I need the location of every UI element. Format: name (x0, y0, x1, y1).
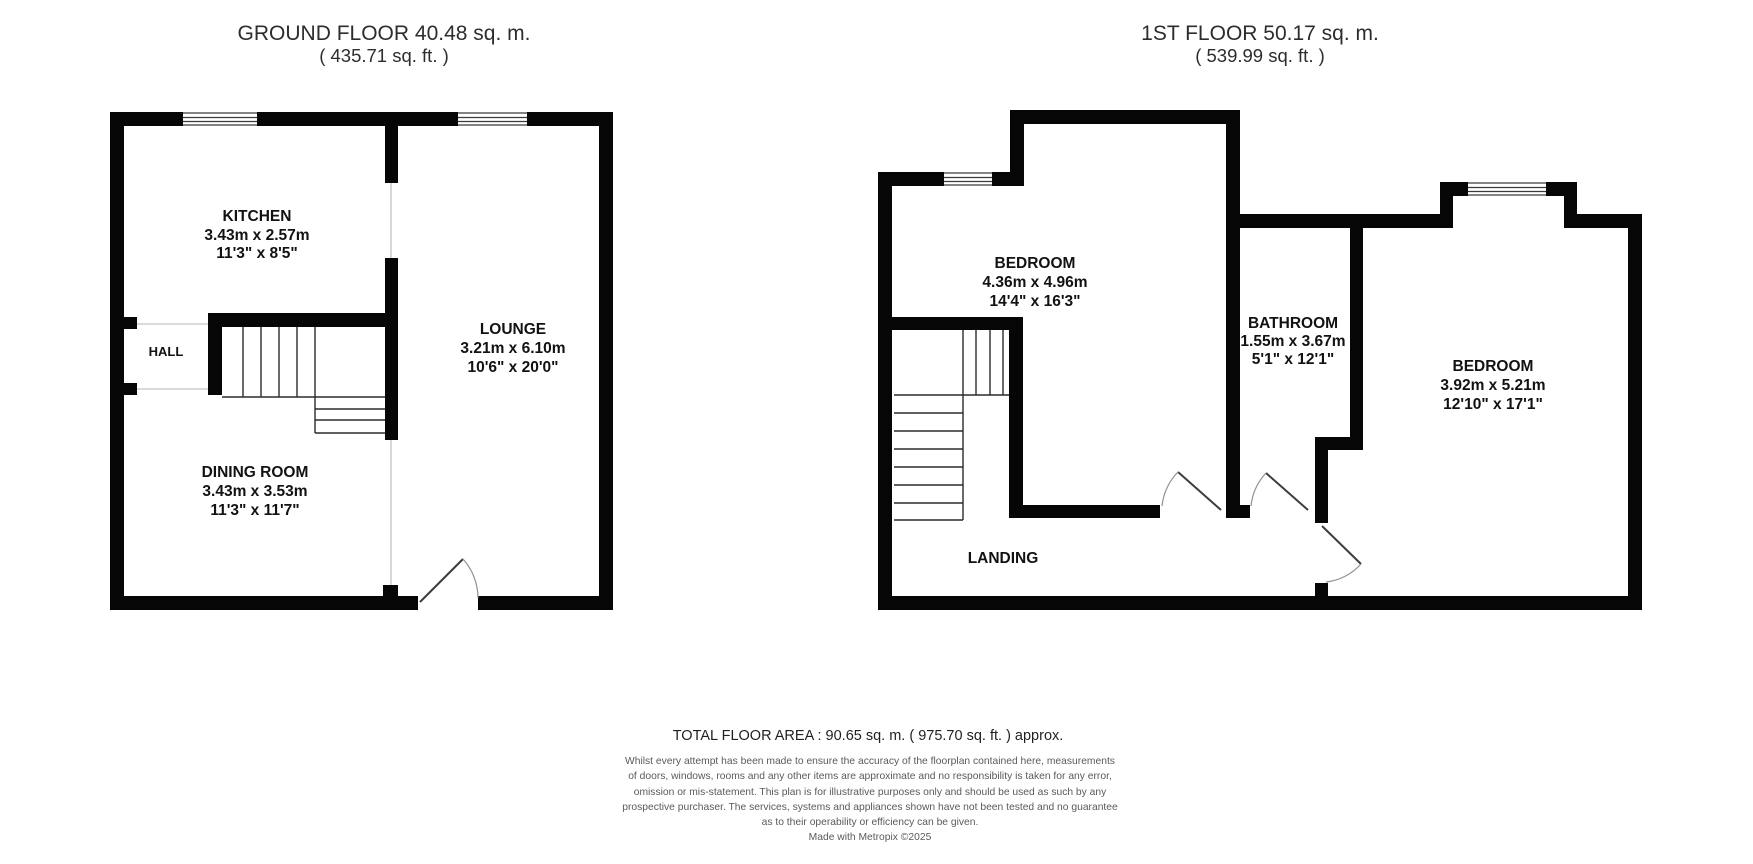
disclaimer-line: of doors, windows, rooms and any other i… (628, 771, 1112, 782)
wall-stub (383, 585, 398, 596)
window-glass (458, 112, 527, 126)
room-label: BEDROOM (995, 255, 1076, 272)
disclaimer-line: prospective purchaser. The services, sys… (622, 802, 1118, 813)
door-swing-arc (1326, 564, 1361, 582)
wall-segment (1009, 317, 1023, 512)
window-glass (944, 172, 992, 186)
floorplan-canvas: GROUND FLOOR 40.48 sq. m. ( 435.71 sq. f… (0, 0, 1753, 864)
room-dims: 14'4" x 16'3" (989, 293, 1080, 310)
disclaimer-line: omission or mis-statement. This plan is … (634, 787, 1107, 798)
room-dims: 3.21m x 6.10m (460, 340, 565, 357)
wall-segment (1009, 505, 1160, 518)
door-swing-arc (1162, 472, 1178, 506)
wall-segment (1315, 437, 1328, 523)
wall-stub (124, 317, 137, 329)
room-dims: 11'3" x 8'5" (216, 245, 298, 262)
wall-segment (110, 112, 124, 610)
door (1251, 473, 1308, 510)
wall-segment (208, 313, 398, 327)
wall-segment (110, 596, 418, 610)
staircase (222, 327, 385, 433)
room-dims: 10'6" x 20'0" (467, 359, 558, 376)
window (458, 112, 527, 126)
wall-segment (1628, 214, 1642, 610)
first-floor-plan: 1ST FLOOR 50.17 sq. m. ( 539.99 sq. ft. … (878, 22, 1642, 610)
disclaimer-line: Whilst every attempt has been made to en… (625, 756, 1115, 767)
window (1468, 182, 1546, 196)
first-floor-subtitle: ( 539.99 sq. ft. ) (1195, 45, 1325, 66)
room-label: DINING ROOM (202, 464, 309, 481)
door-leaf (420, 559, 463, 602)
window (183, 112, 257, 126)
wall-segment (1226, 214, 1453, 228)
ground-floor-plan: GROUND FLOOR 40.48 sq. m. ( 435.71 sq. f… (110, 22, 613, 610)
door-leaf (1266, 473, 1308, 510)
wall-segment (385, 258, 398, 440)
footer: TOTAL FLOOR AREA : 90.65 sq. m. ( 975.70… (622, 728, 1118, 843)
room-label: KITCHEN (223, 208, 292, 225)
wall-segment (1226, 110, 1240, 518)
wall-segment (1226, 505, 1250, 518)
door (1162, 472, 1221, 510)
room-dims: 4.36m x 4.96m (982, 274, 1087, 291)
wall-stub (124, 383, 137, 395)
room-label: LANDING (968, 550, 1039, 567)
wall-segment (878, 172, 892, 610)
room-dims: 12'10" x 17'1" (1443, 396, 1543, 413)
door (1322, 526, 1361, 582)
room-dims: 3.92m x 5.21m (1440, 377, 1545, 394)
wall-segment (1350, 228, 1363, 450)
ground-floor-subtitle: ( 435.71 sq. ft. ) (319, 45, 449, 66)
wall-segment (1010, 110, 1240, 124)
room-label: HALL (149, 344, 184, 359)
disclaimer-line: as to their operability or efficiency ca… (762, 817, 979, 828)
total-floor-area: TOTAL FLOOR AREA : 90.65 sq. m. ( 975.70… (673, 728, 1064, 744)
door-swing-arc (1251, 473, 1266, 506)
window-glass (183, 112, 257, 126)
wall-segment (478, 596, 613, 610)
first-floor-title: 1ST FLOOR 50.17 sq. m. (1141, 22, 1379, 45)
door-leaf (1178, 472, 1221, 510)
ground-floor-title: GROUND FLOOR 40.48 sq. m. (238, 22, 531, 45)
floorplan-page: GROUND FLOOR 40.48 sq. m. ( 435.71 sq. f… (0, 0, 1753, 864)
room-dims: 11'3" x 11'7" (210, 502, 299, 519)
room-label: BEDROOM (1453, 358, 1534, 375)
wall-segment (385, 126, 398, 183)
window (944, 172, 992, 186)
door-swing-arc (463, 559, 478, 598)
wall-segment (599, 112, 613, 610)
credit-line: Made with Metropix ©2025 (809, 832, 932, 843)
room-dims: 3.43m x 2.57m (204, 227, 309, 244)
room-dims: 5'1" x 12'1" (1252, 351, 1334, 368)
door-leaf (1322, 526, 1361, 564)
door (420, 559, 478, 602)
wall-segment (892, 317, 1023, 330)
wall-stub (1315, 583, 1328, 596)
room-dims: 1.55m x 3.67m (1240, 333, 1345, 350)
wall-segment (878, 596, 1642, 610)
window-glass (1468, 182, 1546, 196)
room-dims: 3.43m x 3.53m (202, 483, 307, 500)
wall-segment (208, 313, 222, 395)
staircase (894, 330, 1009, 520)
room-label: BATHROOM (1248, 315, 1338, 332)
room-label: LOUNGE (480, 321, 546, 338)
